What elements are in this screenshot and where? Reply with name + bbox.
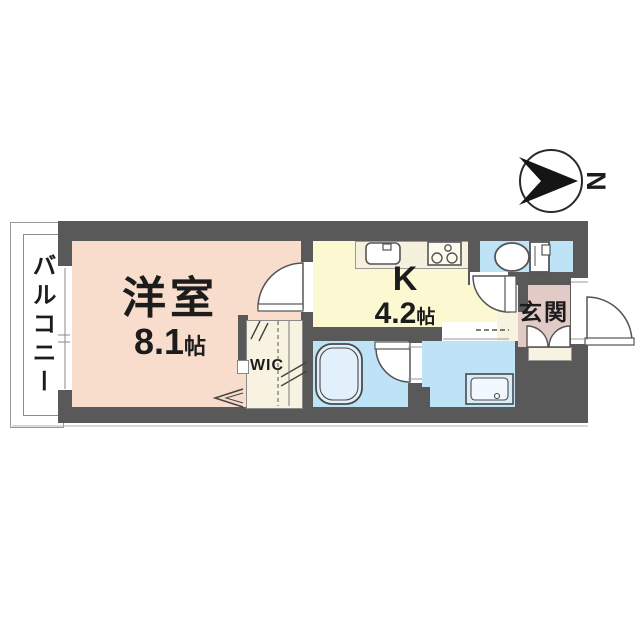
balcony-label-box: バルコニー <box>23 234 60 416</box>
western-room-label: 洋室 8.1帖 <box>80 276 260 367</box>
balcony-window <box>58 266 72 390</box>
floor-plan: バルコニー 洋室 8.1帖 K 4.2帖 WIC 玄関 N <box>0 0 640 640</box>
room-toilet <box>480 241 573 272</box>
western-room-size: 8.1帖 <box>80 322 260 367</box>
western-door-opening <box>301 262 313 312</box>
bath-door-opening <box>408 343 422 383</box>
kitchen-label: K 4.2帖 <box>330 260 480 334</box>
wic-label: WIC <box>246 357 288 375</box>
room-washroom <box>422 341 515 407</box>
shoe-cabinet <box>528 347 572 361</box>
western-room-name: 洋室 <box>80 276 260 322</box>
balcony-label: バルコニー <box>24 253 59 398</box>
kitchen-letter: K <box>330 260 480 298</box>
kitchen-size: 4.2帖 <box>330 298 480 334</box>
washroom-notch <box>408 387 430 407</box>
compass-north-icon <box>519 150 582 212</box>
room-bath <box>313 341 408 407</box>
compass-north-label: N <box>581 166 611 196</box>
entrance-label: 玄関 <box>514 293 574 327</box>
